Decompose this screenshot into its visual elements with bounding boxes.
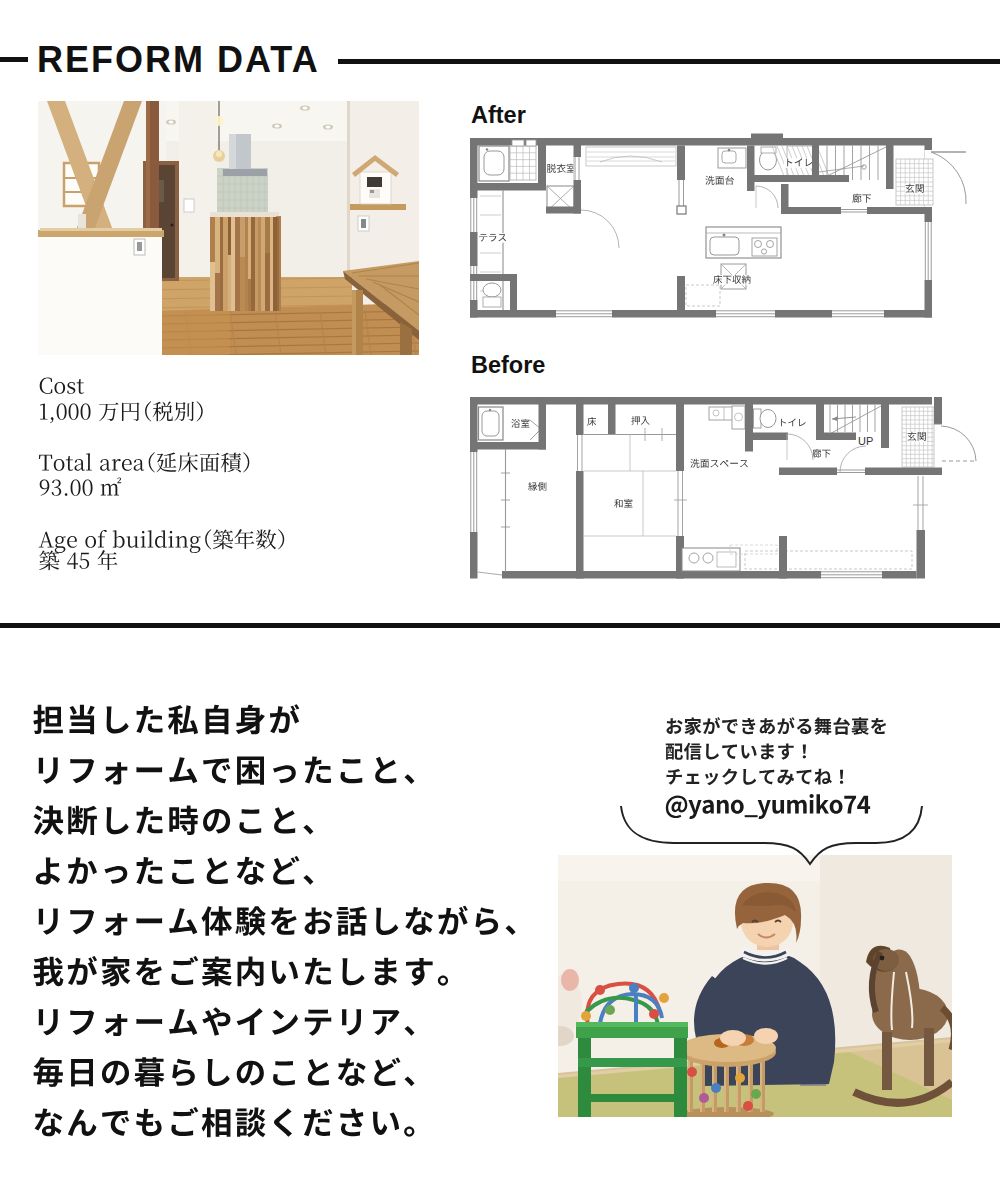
svg-text:UP: UP (858, 435, 873, 447)
